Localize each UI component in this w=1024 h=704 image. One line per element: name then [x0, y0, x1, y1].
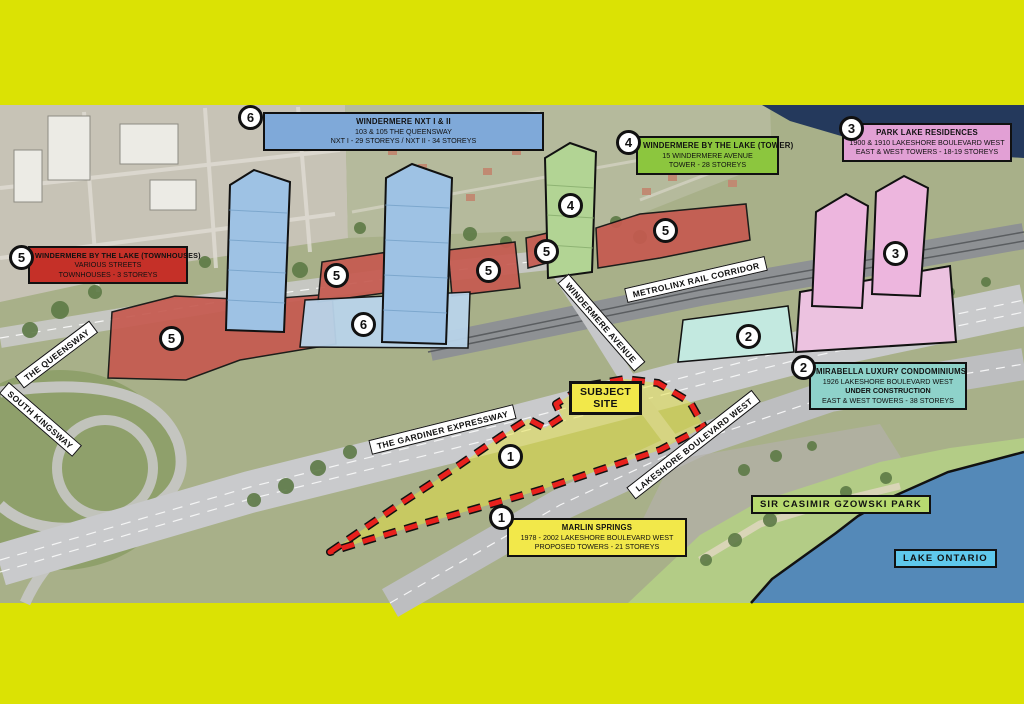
parklake-tower-east — [872, 176, 928, 296]
callout-line: EAST & WEST TOWERS - 18-19 STOREYS — [849, 147, 1005, 156]
nxt-tower-1 — [226, 170, 290, 332]
callout-townhouses: WINDERMERE BY THE LAKE (TOWNHOUSES) VARI… — [28, 246, 188, 284]
marker-4-map: 4 — [558, 193, 583, 218]
callout-title: WINDERMERE BY THE LAKE (TOWER) — [643, 141, 772, 151]
nxt-tower-2 — [382, 164, 452, 344]
site-context-map-page: WINDERMERE NXT I & II 103 & 105 THE QUEE… — [0, 0, 1024, 704]
marker-5-map-a: 5 — [159, 326, 184, 351]
marker-4-callout: 4 — [616, 130, 641, 155]
marker-5-map-e: 5 — [653, 218, 678, 243]
callout-title: MARLIN SPRINGS — [514, 523, 680, 533]
callout-line: EAST & WEST TOWERS - 38 STOREYS — [816, 396, 960, 405]
marker-2-map: 2 — [736, 324, 761, 349]
callout-line: 1978 - 2002 LAKESHORE BOULEVARD WEST — [514, 533, 680, 542]
callout-line: 1926 LAKESHORE BOULEVARD WEST — [816, 377, 960, 386]
callout-marlin-springs: MARLIN SPRINGS 1978 - 2002 LAKESHORE BOU… — [507, 518, 687, 557]
callout-line: 103 & 105 THE QUEENSWAY — [270, 127, 537, 136]
marker-5-callout: 5 — [9, 245, 34, 270]
callout-line: TOWNHOUSES - 3 STOREYS — [35, 270, 181, 279]
callout-title: MIRABELLA LUXURY CONDOMINIUMS — [816, 367, 960, 377]
callout-mirabella: MIRABELLA LUXURY CONDOMINIUMS 1926 LAKES… — [809, 362, 967, 410]
callout-line: PROPOSED TOWERS - 21 STOREYS — [514, 542, 680, 551]
parklake-tower-west — [812, 194, 868, 308]
marker-3-callout: 3 — [839, 116, 864, 141]
callout-line: 1900 & 1910 LAKESHORE BOULEVARD WEST — [849, 138, 1005, 147]
subject-site-label: SUBJECT SITE — [569, 381, 642, 415]
callout-parklake: PARK LAKE RESIDENCES 1900 & 1910 LAKESHO… — [842, 123, 1012, 162]
marker-6-map: 6 — [351, 312, 376, 337]
marker-5-map-b: 5 — [324, 263, 349, 288]
callout-line: VARIOUS STREETS — [35, 260, 181, 269]
marker-1-callout: 1 — [489, 505, 514, 530]
callout-title: WINDERMERE BY THE LAKE (TOWNHOUSES) — [35, 251, 181, 260]
marker-5-map-c: 5 — [476, 258, 501, 283]
callout-title: WINDERMERE NXT I & II — [270, 117, 537, 127]
callout-line: 15 WINDERMERE AVENUE — [643, 151, 772, 160]
aerial-map-graphic — [0, 0, 1024, 704]
callout-windermere-nxt: WINDERMERE NXT I & II 103 & 105 THE QUEE… — [263, 112, 544, 151]
lake-label: LAKE ONTARIO — [894, 549, 997, 568]
callout-line: UNDER CONSTRUCTION — [816, 386, 960, 395]
marker-3-map: 3 — [883, 241, 908, 266]
callout-line: TOWER - 28 STOREYS — [643, 160, 772, 169]
marker-1-map: 1 — [498, 444, 523, 469]
marker-5-map-d: 5 — [534, 239, 559, 264]
marker-6-callout: 6 — [238, 105, 263, 130]
callout-line: NXT I - 29 STOREYS / NXT II - 34 STOREYS — [270, 136, 537, 145]
marker-2-callout: 2 — [791, 355, 816, 380]
callout-title: PARK LAKE RESIDENCES — [849, 128, 1005, 138]
park-label: SIR CASIMIR GZOWSKI PARK — [751, 495, 931, 514]
callout-windermere-tower: WINDERMERE BY THE LAKE (TOWER) 15 WINDER… — [636, 136, 779, 175]
